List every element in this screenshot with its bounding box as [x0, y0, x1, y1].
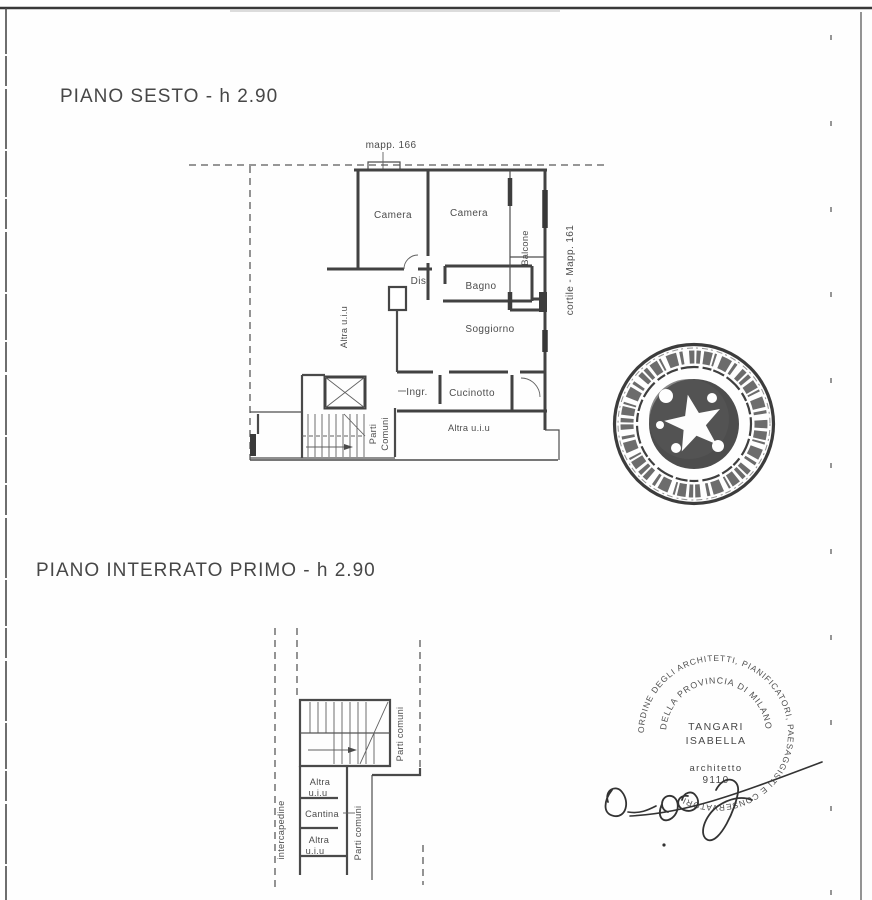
- architect-name-line2: ISABELLA: [686, 735, 747, 747]
- plan1-walls: [250, 152, 559, 460]
- cell-cantina-label: Cantina: [305, 809, 339, 819]
- floorplan-piano-sesto: mapp. 166 cortile - Mapp. 161 Camera Cam…: [189, 140, 607, 460]
- common-parts-stairs-label: Parti comuni: [395, 707, 405, 762]
- document-canvas: mapp. 166 cortile - Mapp. 161 Camera Cam…: [0, 0, 872, 900]
- duct-shaft: [389, 287, 406, 310]
- cell-other-unit-top-line2: u.i.u: [309, 788, 328, 798]
- cell-other-unit-bottom-line2: u.i.u: [306, 846, 325, 856]
- stairs-plan1: [302, 414, 365, 457]
- stairs-plan2: [300, 702, 390, 764]
- other-unit-label-left: Altra u.i.u: [339, 306, 349, 348]
- room-label-camera-1: Camera: [374, 210, 412, 221]
- architect-role: architetto: [689, 763, 742, 774]
- official-round-stamp: [615, 345, 774, 504]
- architect-name-line1: TANGARI: [688, 721, 744, 733]
- courtyard-parcel-label: cortile - Mapp. 161: [565, 225, 576, 315]
- room-label-camera-2: Camera: [450, 208, 488, 219]
- room-label-balcone: Balcone: [520, 230, 530, 265]
- room-label-dis: Dis.: [411, 276, 430, 287]
- intercapedine-label: intercapedine: [276, 800, 286, 859]
- room-label-soggiorno: Soggiorno: [465, 324, 514, 335]
- room-label-ingresso: Ingr.: [406, 387, 427, 398]
- cell-other-unit-bottom-line1: Altra: [309, 835, 330, 845]
- room-label-cucinotto: Cucinotto: [449, 388, 495, 399]
- map-parcel-label: mapp. 166: [366, 140, 417, 151]
- cell-other-unit-top-line1: Altra: [310, 777, 331, 787]
- common-parts-label-line1: Parti: [368, 424, 378, 444]
- room-label-bagno: Bagno: [466, 281, 497, 292]
- plan2-labels: intercapedine Parti comuni Parti comuni …: [276, 707, 405, 861]
- floorplan-piano-interrato: intercapedine Parti comuni Parti comuni …: [275, 628, 423, 888]
- scanned-floorplan-page: PIANO SESTO - h 2.90 PIANO INTERRATO PRI…: [0, 0, 872, 900]
- elevator-shaft: [325, 377, 365, 408]
- other-unit-label-bottom: Altra u.i.u: [448, 423, 490, 433]
- common-parts-label-line2: Comuni: [380, 417, 390, 450]
- common-parts-corridor-label: Parti comuni: [353, 806, 363, 861]
